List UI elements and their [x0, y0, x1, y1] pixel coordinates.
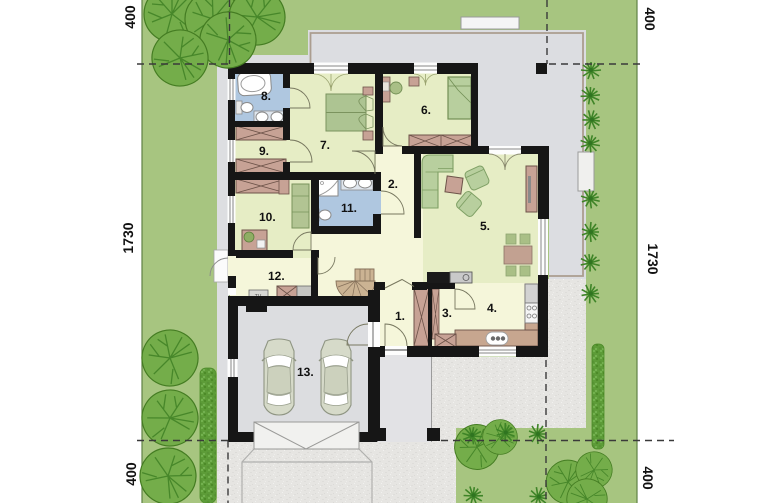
- svg-text:400: 400: [640, 466, 656, 490]
- svg-text:8.: 8.: [261, 89, 271, 103]
- svg-text:9.: 9.: [259, 144, 269, 158]
- svg-text:400: 400: [642, 7, 658, 31]
- svg-text:400: 400: [123, 462, 139, 486]
- svg-text:400: 400: [122, 5, 138, 29]
- svg-text:11.: 11.: [341, 201, 357, 215]
- svg-text:1.: 1.: [395, 309, 405, 323]
- svg-text:13.: 13.: [297, 365, 314, 379]
- svg-text:12.: 12.: [268, 269, 285, 283]
- svg-text:10.: 10.: [259, 210, 276, 224]
- svg-text:5.: 5.: [480, 219, 490, 233]
- svg-text:4.: 4.: [487, 301, 497, 315]
- svg-text:7.: 7.: [320, 138, 330, 152]
- svg-text:1730: 1730: [120, 222, 136, 253]
- svg-text:3.: 3.: [442, 306, 452, 320]
- svg-text:2.: 2.: [388, 177, 398, 191]
- svg-text:6.: 6.: [421, 103, 431, 117]
- svg-text:1730: 1730: [645, 243, 661, 274]
